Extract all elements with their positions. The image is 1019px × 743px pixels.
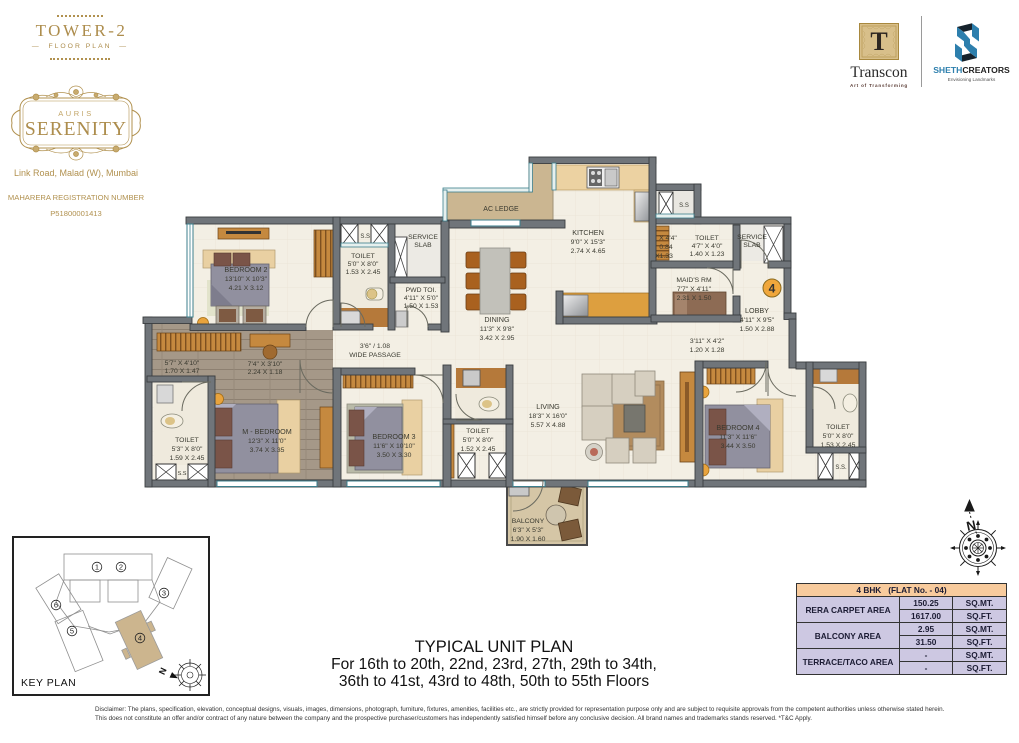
svg-text:5'3" X 8'0": 5'3" X 8'0" <box>172 446 203 453</box>
svg-text:1.70 X 1.47: 1.70 X 1.47 <box>165 368 200 375</box>
svg-text:1.40 X 1.23: 1.40 X 1.23 <box>690 251 725 258</box>
svg-text:TOILET: TOILET <box>826 424 850 431</box>
svg-text:SERVICE: SERVICE <box>408 234 438 241</box>
svg-text:4: 4 <box>769 282 776 296</box>
svg-text:S.S: S.S <box>679 203 689 209</box>
svg-text:2: 2 <box>119 563 123 572</box>
svg-text:5'7" X 4'10": 5'7" X 4'10" <box>165 360 200 367</box>
svg-text:WIDE PASSAGE: WIDE PASSAGE <box>349 352 401 359</box>
svg-text:S.S: S.S <box>178 471 187 477</box>
svg-text:18'3" X 16'0": 18'3" X 16'0" <box>529 413 568 420</box>
svg-text:5.57 X 4.88: 5.57 X 4.88 <box>531 422 566 429</box>
svg-text:TOILET: TOILET <box>695 235 719 242</box>
svg-text:SLAB: SLAB <box>414 242 432 249</box>
svg-text:1.59 X 2.45: 1.59 X 2.45 <box>170 455 205 462</box>
svg-text:BEDROOM 2: BEDROOM 2 <box>224 265 267 274</box>
svg-text:BEDROOM 4: BEDROOM 4 <box>716 423 759 432</box>
svg-text:4'11" X 9'5": 4'11" X 9'5" <box>740 317 775 324</box>
svg-text:3.50 X 3.30: 3.50 X 3.30 <box>377 452 412 459</box>
svg-text:3.74 X 3.35: 3.74 X 3.35 <box>250 447 285 454</box>
svg-text:LIVING: LIVING <box>536 402 560 411</box>
svg-text:TOILET: TOILET <box>175 437 199 444</box>
svg-text:5'0" X 8'0": 5'0" X 8'0" <box>348 261 379 268</box>
svg-text:11'6" X 10'10": 11'6" X 10'10" <box>373 443 415 450</box>
svg-text:2.24 X 1.18: 2.24 X 1.18 <box>248 369 283 376</box>
svg-text:SLAB: SLAB <box>743 242 761 249</box>
svg-text:3'6" / 1.08: 3'6" / 1.08 <box>360 343 390 350</box>
svg-text:KITCHEN: KITCHEN <box>572 228 604 237</box>
svg-text:4'7" X 4'0": 4'7" X 4'0" <box>692 243 723 250</box>
svg-text:6'3" X 5'3": 6'3" X 5'3" <box>513 527 544 534</box>
svg-text:3: 3 <box>162 589 166 598</box>
svg-text:S.S.: S.S. <box>835 465 847 471</box>
svg-text:SERVICE: SERVICE <box>737 234 767 241</box>
svg-text:M - BEDROOM: M - BEDROOM <box>242 427 292 436</box>
svg-text:1.90 X 1.60: 1.90 X 1.60 <box>511 536 546 543</box>
svg-text:N: N <box>157 666 169 676</box>
svg-text:X 4'4": X 4'4" <box>659 235 677 242</box>
svg-text:7'7" X 4'11": 7'7" X 4'11" <box>677 286 712 293</box>
svg-text:TOILET: TOILET <box>466 428 490 435</box>
svg-text:4'11" X 5'0": 4'11" X 5'0" <box>404 295 439 302</box>
svg-text:MAID'S RM: MAID'S RM <box>676 277 712 284</box>
svg-text:4.21 X 3.12: 4.21 X 3.12 <box>229 285 264 292</box>
svg-text:1.52 X 2.45: 1.52 X 2.45 <box>461 446 496 453</box>
svg-text:S.S.: S.S. <box>360 234 372 240</box>
svg-text:PWD TOI.: PWD TOI. <box>406 287 437 294</box>
svg-text:1.53 X 2.45: 1.53 X 2.45 <box>821 442 856 449</box>
svg-text:3.44 X 3.50: 3.44 X 3.50 <box>721 443 756 450</box>
svg-text:LOBBY: LOBBY <box>745 306 769 315</box>
svg-text:2.74 X 4.65: 2.74 X 4.65 <box>571 248 606 255</box>
svg-text:1: 1 <box>95 563 99 572</box>
svg-text:N: N <box>965 517 977 534</box>
svg-text:13'10" X 10'3": 13'10" X 10'3" <box>225 276 268 283</box>
svg-text:6: 6 <box>54 601 58 610</box>
svg-text:1.50 X 1.53: 1.50 X 1.53 <box>404 303 439 310</box>
svg-text:1.53 X 2.45: 1.53 X 2.45 <box>346 269 381 276</box>
svg-text:11'3" X 11'6": 11'3" X 11'6" <box>719 434 757 441</box>
svg-text:3'11" X 4'2": 3'11" X 4'2" <box>690 338 725 345</box>
svg-text:TOILET: TOILET <box>351 253 375 260</box>
svg-text:X1.33: X1.33 <box>655 253 673 260</box>
svg-text:3.42 X 2.95: 3.42 X 2.95 <box>480 335 515 342</box>
svg-text:4: 4 <box>138 634 142 643</box>
svg-text:12'3" X 11'0": 12'3" X 11'0" <box>248 438 286 445</box>
svg-text:5'0" X 8'0": 5'0" X 8'0" <box>823 433 854 440</box>
svg-text:1.20 X 1.28: 1.20 X 1.28 <box>690 347 725 354</box>
svg-text:BEDROOM 3: BEDROOM 3 <box>372 432 415 441</box>
svg-text:2.31 X 1.50: 2.31 X 1.50 <box>677 295 712 302</box>
svg-text:1.50 X 2.88: 1.50 X 2.88 <box>740 326 775 333</box>
svg-text:0.84: 0.84 <box>659 244 672 251</box>
svg-text:11'3" X 9'8": 11'3" X 9'8" <box>480 326 515 333</box>
svg-text:5: 5 <box>70 627 74 636</box>
svg-text:5'0" X 8'0": 5'0" X 8'0" <box>463 437 494 444</box>
svg-text:9'0" X 15'3": 9'0" X 15'3" <box>571 239 606 246</box>
svg-text:BALCONY: BALCONY <box>512 518 545 525</box>
svg-text:DINING: DINING <box>484 315 510 324</box>
svg-text:AC LEDGE: AC LEDGE <box>483 206 519 213</box>
svg-text:7'4" X 3'10": 7'4" X 3'10" <box>248 361 283 368</box>
